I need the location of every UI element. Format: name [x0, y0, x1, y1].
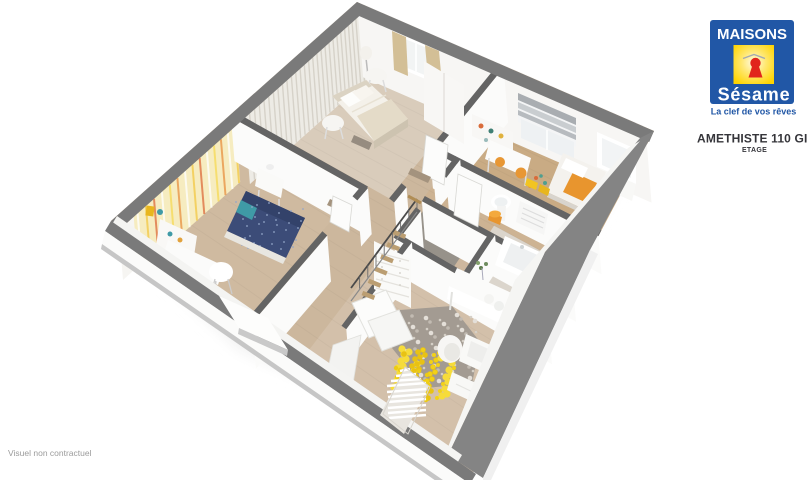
svg-text:La clef de vos rêves: La clef de vos rêves	[711, 107, 797, 117]
svg-text:MAISONS: MAISONS	[717, 26, 787, 43]
svg-text:ETAGE: ETAGE	[742, 147, 767, 154]
svg-text:AMETHISTE 110 GI: AMETHISTE 110 GI	[697, 131, 807, 145]
svg-text:Sésame: Sésame	[718, 85, 791, 105]
svg-text:Visuel non contractuel: Visuel non contractuel	[8, 448, 92, 458]
